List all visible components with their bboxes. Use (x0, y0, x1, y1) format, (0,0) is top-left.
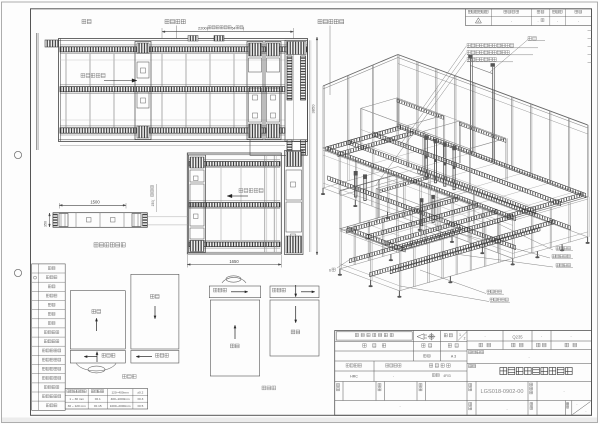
svg-text:54: 54 (232, 26, 236, 30)
svg-text:·: · (570, 334, 571, 339)
svg-text:150(: 150( (151, 199, 155, 207)
svg-text:Q235: Q235 (512, 335, 523, 340)
svg-text:±0.2: ±0.2 (137, 390, 143, 394)
svg-text:1500: 1500 (90, 200, 100, 205)
svg-text:6: 6 (329, 269, 331, 273)
svg-text:±0.15: ±0.15 (94, 404, 102, 408)
svg-text:·: · (557, 19, 558, 24)
svg-text:4F03: 4F03 (443, 374, 450, 378)
svg-text:±0.5: ±0.5 (137, 404, 143, 408)
svg-text:·: · (537, 19, 538, 24)
svg-text:350: 350 (44, 221, 48, 227)
svg-text:·: · (511, 19, 512, 24)
svg-text:2: 2 (464, 337, 466, 341)
svg-text:·: · (484, 334, 485, 339)
svg-text:1: 1 (459, 333, 461, 337)
svg-text:·: · (585, 410, 586, 414)
svg-text:·: · (576, 403, 577, 407)
svg-text:·: · (528, 355, 529, 360)
svg-text:1650: 1650 (229, 259, 239, 264)
svg-text:±0.1: ±0.1 (95, 397, 101, 401)
svg-text:HRC: HRC (350, 375, 358, 379)
svg-text:A 3: A 3 (451, 355, 456, 359)
svg-text:2200(: 2200( (198, 25, 209, 30)
svg-text:30 ~ 120 mm: 30 ~ 120 mm (68, 404, 87, 408)
svg-text:LGS018-0902-00: LGS018-0902-00 (481, 389, 524, 395)
svg-text:1000~2000mm: 1000~2000mm (110, 404, 131, 408)
svg-text:120~400mm: 120~400mm (111, 390, 129, 394)
svg-text:A: A (478, 19, 480, 23)
svg-text:±0.3: ±0.3 (137, 397, 143, 401)
svg-text:3850: 3850 (311, 104, 316, 114)
svg-text:400~1000mm: 400~1000mm (111, 397, 130, 401)
svg-text:·: · (393, 374, 394, 379)
svg-text:·: · (563, 389, 564, 394)
svg-text:·: · (578, 19, 579, 24)
svg-text:·: · (506, 407, 507, 412)
svg-text:1 ~ 30 mm: 1 ~ 30 mm (69, 397, 84, 401)
svg-text:·: · (541, 334, 542, 339)
svg-text:·: · (399, 404, 400, 409)
